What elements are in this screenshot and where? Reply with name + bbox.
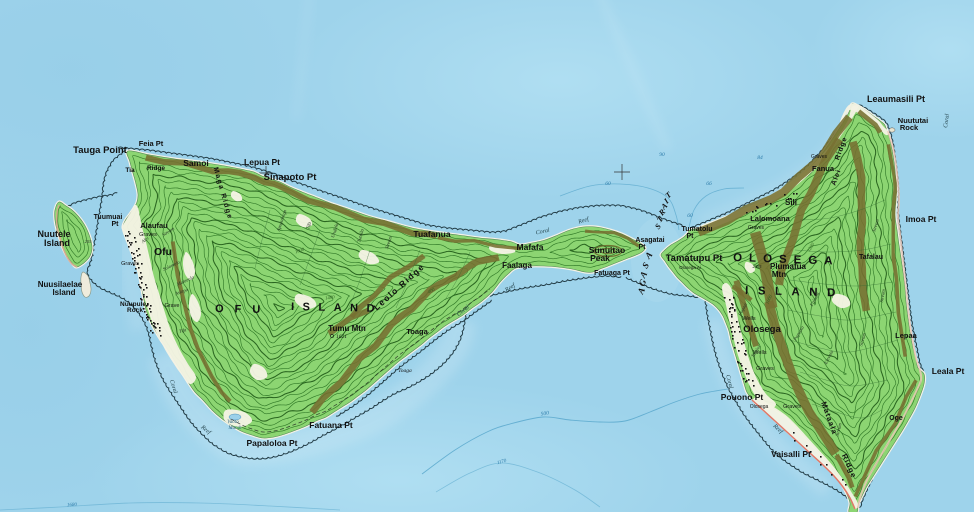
svg-text:60: 60 xyxy=(687,213,693,219)
svg-text:Island: Island xyxy=(52,288,75,297)
svg-text:Olosega: Olosega xyxy=(750,404,769,410)
svg-text:84: 84 xyxy=(757,154,763,161)
svg-text:Feia Pt: Feia Pt xyxy=(139,139,164,148)
svg-text:Tauga Point: Tauga Point xyxy=(73,145,127,156)
svg-text:1680: 1680 xyxy=(67,503,78,509)
svg-text:Leaumasili Pt: Leaumasili Pt xyxy=(867,94,925,104)
svg-text:Olosega Ai: Olosega Ai xyxy=(679,265,701,270)
svg-text:Samoi: Samoi xyxy=(183,158,209,168)
svg-text:Pouono Pt: Pouono Pt xyxy=(721,392,764,402)
svg-text:Mafafa: Mafafa xyxy=(517,242,544,252)
svg-text:66: 66 xyxy=(706,181,712,187)
svg-text:Graves: Graves xyxy=(811,154,828,160)
svg-text:Tuafanua: Tuafanua xyxy=(413,229,450,239)
svg-text:Graves: Graves xyxy=(748,225,765,231)
svg-text:Pt: Pt xyxy=(687,233,695,240)
svg-text:Graves: Graves xyxy=(783,404,801,410)
svg-text:Lepaa: Lepaa xyxy=(895,331,918,340)
svg-text:Fatuana Pt: Fatuana Pt xyxy=(309,420,353,430)
svg-text:OFU: OFU xyxy=(215,303,271,316)
svg-text:2095: 2095 xyxy=(753,264,763,269)
svg-text:Vaoto: Vaoto xyxy=(227,420,239,425)
svg-text:Tuumuai: Tuumuai xyxy=(94,214,123,221)
svg-text:Tamatupu Pt: Tamatupu Pt xyxy=(666,253,724,264)
svg-text:Fanua: Fanua xyxy=(812,164,835,173)
svg-text:255: 255 xyxy=(85,239,93,244)
svg-text:Rock: Rock xyxy=(900,123,919,132)
svg-text:Mtn: Mtn xyxy=(772,270,786,279)
svg-text:Pt: Pt xyxy=(112,221,120,228)
svg-text:Toaga: Toaga xyxy=(398,368,412,374)
svg-text:Tia: Tia xyxy=(125,167,135,174)
svg-text:60: 60 xyxy=(605,181,611,187)
svg-text:Lalomoana: Lalomoana xyxy=(750,214,790,223)
svg-text:Vaisalli Pt: Vaisalli Pt xyxy=(771,449,811,459)
svg-text:Grave: Grave xyxy=(165,303,180,309)
svg-text:Alaufau: Alaufau xyxy=(140,221,168,230)
svg-text:Graves: Graves xyxy=(121,261,139,267)
svg-text:Ridge: Ridge xyxy=(147,165,165,172)
svg-text:Oge: Oge xyxy=(889,415,903,422)
svg-text:Wells: Wells xyxy=(742,316,756,322)
svg-text:Pt: Pt xyxy=(639,244,647,251)
svg-text:Lepua Pt: Lepua Pt xyxy=(244,157,280,167)
svg-text:Marsh: Marsh xyxy=(227,426,242,431)
svg-text:Peak: Peak xyxy=(590,253,610,263)
svg-text:90: 90 xyxy=(659,152,665,158)
svg-text:Olosega: Olosega xyxy=(743,324,781,335)
svg-text:1621: 1621 xyxy=(336,334,347,340)
svg-text:Graves: Graves xyxy=(139,232,157,238)
svg-text:Papaloloa Pt: Papaloloa Pt xyxy=(246,438,297,448)
svg-text:ISLAND: ISLAND xyxy=(291,301,383,315)
svg-text:Rock: Rock xyxy=(127,307,143,314)
svg-text:Island: Island xyxy=(44,238,70,248)
svg-text:Imoa Pt: Imoa Pt xyxy=(906,214,937,224)
svg-text:Sinapoto Pt: Sinapoto Pt xyxy=(264,172,318,183)
svg-text:Faalaga: Faalaga xyxy=(502,261,532,270)
svg-text:Fatuaga Pt: Fatuaga Pt xyxy=(594,270,630,277)
svg-text:Graves: Graves xyxy=(756,366,774,372)
svg-text:Ofu: Ofu xyxy=(154,246,172,258)
svg-text:Tumatolu: Tumatolu xyxy=(682,226,713,233)
svg-text:Sili: Sili xyxy=(785,198,797,207)
svg-text:Tafalau: Tafalau xyxy=(859,254,883,261)
svg-text:Asagatai: Asagatai xyxy=(635,237,664,244)
svg-text:Tumu Mtn: Tumu Mtn xyxy=(328,324,366,333)
svg-text:Toaga: Toaga xyxy=(406,327,428,336)
svg-text:Leala Pt: Leala Pt xyxy=(932,366,965,376)
svg-text:500: 500 xyxy=(540,410,549,417)
